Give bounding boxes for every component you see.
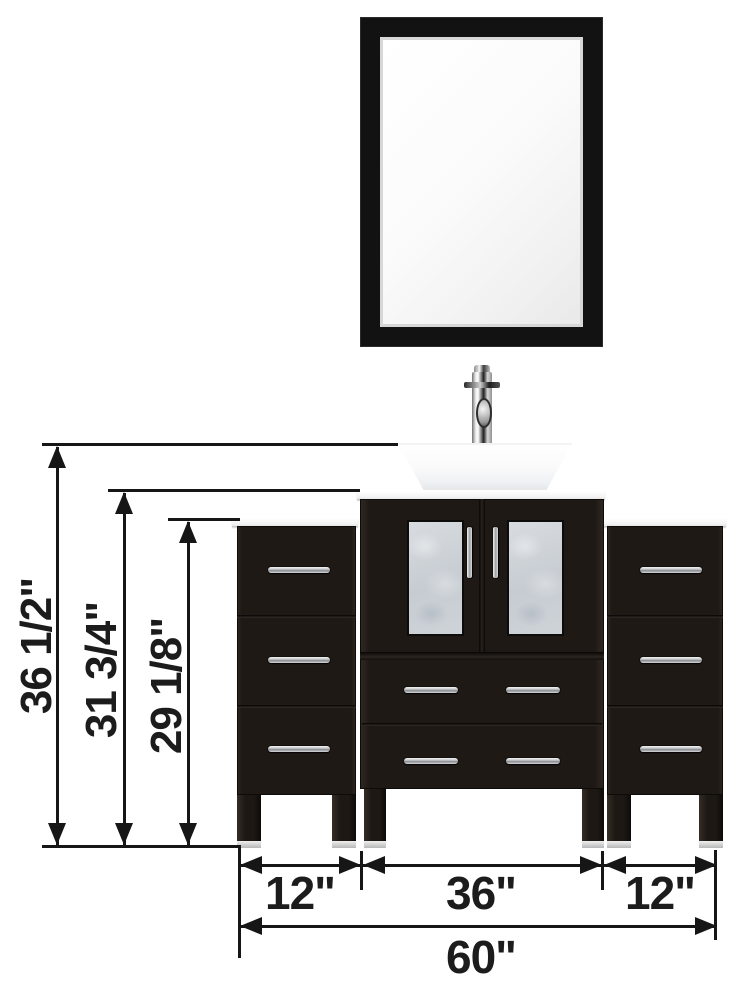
extension-line (42, 443, 398, 446)
faucet-spout-detail (476, 398, 492, 428)
drawer-handle (640, 657, 702, 663)
dim-arrowhead (240, 856, 262, 874)
cabinet-leg (582, 789, 604, 841)
mirror-frame (360, 17, 603, 347)
drawer-divider (362, 723, 602, 726)
dim-arrowhead (363, 856, 385, 874)
dim-label-center-width: 36" (446, 870, 516, 916)
cabinet-leg (237, 795, 261, 841)
vessel-sink (396, 442, 574, 490)
drawer-handle (506, 758, 560, 764)
dim-label-overall-height: 36 1/2" (15, 578, 59, 714)
leg-foot-cap (699, 841, 723, 848)
dim-arrowhead (240, 917, 262, 935)
drawer-handle (640, 746, 702, 752)
leg-foot-cap (332, 841, 356, 848)
dim-label-overall-width: 60" (446, 934, 516, 980)
dim-arrowhead (695, 917, 717, 935)
center-vanity-cabinet (360, 499, 604, 789)
dim-arrowhead (580, 856, 602, 874)
drawer-divider (237, 705, 356, 708)
dim-arrowhead (48, 446, 66, 468)
drawer-divider (237, 615, 356, 618)
drawer-handle (640, 567, 702, 573)
left-side-cabinet (237, 526, 356, 795)
leg-foot-cap (364, 841, 386, 848)
drawer-handle (268, 567, 330, 573)
dim-arrowhead (695, 856, 717, 874)
extension-line (108, 489, 360, 492)
drawer-divider (607, 615, 723, 618)
door-handle-left (467, 527, 472, 578)
door-handle-right (493, 527, 498, 578)
cabinet-leg (607, 795, 631, 841)
door-divider (479, 499, 485, 653)
drawer-handle (506, 687, 560, 693)
dim-arrowhead (179, 521, 197, 543)
dim-label-countertop-height: 31 3/4" (80, 602, 124, 738)
cabinet-leg (332, 795, 356, 841)
dim-label-right-width: 12" (625, 870, 695, 916)
drawer-divider (607, 705, 723, 708)
cabinet-leg (364, 789, 386, 841)
dim-arrowhead (48, 823, 66, 845)
dim-arrowhead (179, 823, 197, 845)
dimension-line (240, 925, 717, 928)
mirror-glass (380, 37, 583, 327)
dim-arrowhead (604, 856, 626, 874)
drawer-handle (268, 657, 330, 663)
dim-arrowhead (115, 492, 133, 514)
leg-foot-cap (582, 841, 604, 848)
door-frosted-glass-right (507, 520, 564, 636)
drawer-handle (404, 687, 458, 693)
right-side-cabinet (607, 526, 723, 795)
drawer-handle (404, 758, 458, 764)
vanity-dimension-diagram: 36 1/2" 31 3/4" 29 1/8" 12" 36" 12" (0, 0, 750, 990)
dim-label-side-cabinet-height: 29 1/8" (145, 618, 189, 754)
dim-arrowhead (115, 823, 133, 845)
door-frosted-glass-left (407, 520, 464, 636)
dim-arrowhead (339, 856, 361, 874)
floor-line (42, 845, 241, 848)
drawer-handle (268, 746, 330, 752)
door-bottom-rail (360, 652, 604, 660)
dim-label-left-width: 12" (265, 870, 335, 916)
leg-foot-cap (607, 841, 631, 848)
cabinet-leg (699, 795, 723, 841)
faucet-handle-lever (464, 382, 500, 388)
